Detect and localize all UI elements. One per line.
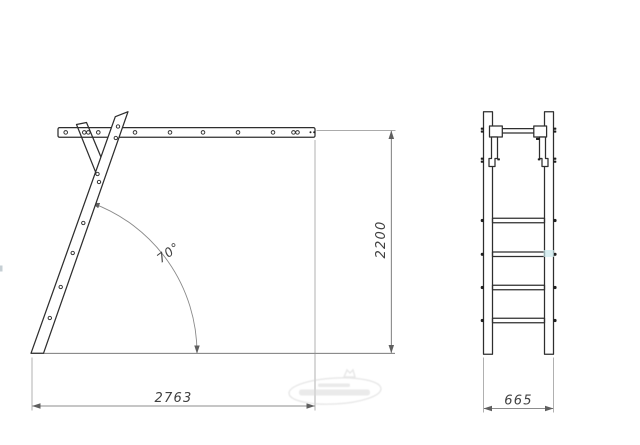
highlight-artifact <box>544 250 555 257</box>
side-view <box>31 112 315 354</box>
dimension-lines <box>31 131 554 413</box>
technical-drawing-page: 2763 665 2200 70° <box>0 0 640 445</box>
edge-artifact <box>0 266 3 272</box>
front-view <box>481 112 557 354</box>
hook-bracket-right <box>534 126 548 167</box>
inclined-rail <box>31 112 128 354</box>
width-dimension-label: 2763 <box>155 391 193 406</box>
hook-bracket-left <box>489 126 502 167</box>
depth-dimension-label: 665 <box>504 394 532 409</box>
angle-arc <box>92 203 197 353</box>
dimension-labels: 2763 665 2200 70° <box>154 221 533 409</box>
watermark <box>288 370 381 406</box>
ladder-drawing: 2763 665 2200 70° <box>0 0 640 445</box>
height-dimension-label: 2200 <box>374 221 389 259</box>
beam-holes <box>64 131 315 135</box>
rungs <box>493 218 545 322</box>
